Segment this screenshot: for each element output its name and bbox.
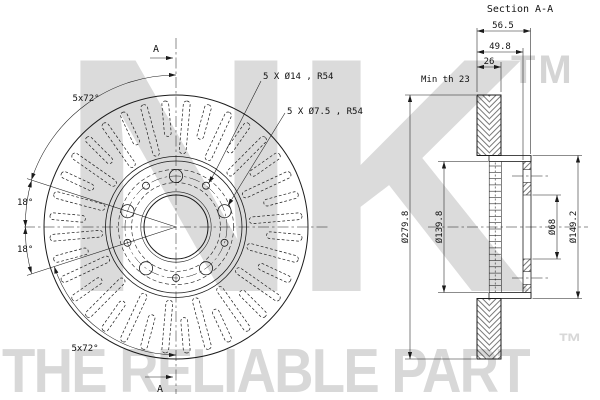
ring-hatch <box>489 95 501 156</box>
pin-hole <box>203 182 210 189</box>
vent-slot <box>60 170 95 191</box>
vent-slot <box>70 152 117 188</box>
pin-hole <box>143 182 150 189</box>
vent-slot <box>238 289 268 319</box>
vent-slot <box>246 243 299 263</box>
label-pattern-bottom: 5x72° <box>71 344 98 354</box>
dim-hat-diameter: Ø149.2 <box>568 211 579 244</box>
label-angle-upper: 18° <box>17 198 33 208</box>
vent-slot <box>196 104 212 140</box>
radial-line-upper <box>27 179 176 227</box>
section-title: Section A-A <box>487 4 553 15</box>
vent-slot <box>162 101 172 137</box>
hat-wall-bottom <box>489 293 531 299</box>
flange-hatch <box>523 259 531 272</box>
vent-slot <box>140 314 156 350</box>
radial-line-lower <box>27 227 176 275</box>
drawing-canvas: NK TM THE RELIABLE PART ™ <box>0 0 600 400</box>
vent-slot <box>211 308 232 343</box>
vent-slot <box>257 262 292 283</box>
bolt-holes <box>121 169 231 281</box>
vent-slot <box>263 191 299 207</box>
vent-slot <box>53 191 106 211</box>
vent-slot <box>50 213 86 223</box>
vent-slot <box>101 300 127 333</box>
vent-slot <box>140 104 160 157</box>
ring-hatch <box>477 299 489 360</box>
flange-hatch <box>523 285 531 293</box>
label-small-holes: 5 X Ø7.5 , R54 <box>287 106 363 117</box>
vent-slot <box>192 297 212 350</box>
vent-slot <box>249 213 302 224</box>
vent-slot <box>50 230 103 241</box>
leader-small-holes <box>228 113 285 206</box>
vent-slot <box>249 152 282 178</box>
dim-total-width: 56.5 <box>492 21 514 31</box>
vent-slot <box>84 135 114 165</box>
label-bolt-holes: 5 X Ø14 , R54 <box>263 71 333 82</box>
bolt-hole <box>218 205 231 218</box>
hat-wall-top <box>489 156 531 162</box>
section-view: Section A-A 56.5 49.8 26 Min th 23 Ø279.… <box>400 4 588 359</box>
dim-outer-diameter: Ø279.8 <box>400 211 411 244</box>
label-pattern-top: 5x72° <box>72 94 99 104</box>
vent-slot <box>266 232 302 242</box>
section-marker-bottom: A <box>157 384 163 395</box>
vent-slot <box>234 266 281 302</box>
vent-slot <box>53 247 89 263</box>
vent-slot <box>70 276 103 302</box>
hole-spacing-arc-bottom <box>54 267 176 355</box>
label-angle-lower: 18° <box>17 245 33 255</box>
dim-disc-thickness: 26 <box>484 57 495 67</box>
vent-slot <box>162 300 173 353</box>
vent-slot <box>181 317 191 353</box>
front-view: 5 X Ø14 , R54 5 X Ø7.5 , R54 5x72° 5x72°… <box>17 38 363 395</box>
dim-min-thickness: Min th 23 <box>421 75 470 85</box>
vent-slot <box>119 111 140 146</box>
dim-hat-depth: 49.8 <box>489 42 511 52</box>
flange-hatch <box>523 162 531 170</box>
vent-slot <box>179 101 190 154</box>
technical-drawing: 5 X Ø14 , R54 5 X Ø7.5 , R54 5x72° 5x72°… <box>0 0 600 400</box>
ring-hatch <box>477 95 489 156</box>
ring-hatch <box>489 299 501 360</box>
flange-hatch <box>523 183 531 196</box>
section-marker-top: A <box>153 44 159 55</box>
dim-inner-diameter: Ø139.8 <box>434 211 445 244</box>
dim-bore-diameter: Ø68 <box>547 219 558 235</box>
